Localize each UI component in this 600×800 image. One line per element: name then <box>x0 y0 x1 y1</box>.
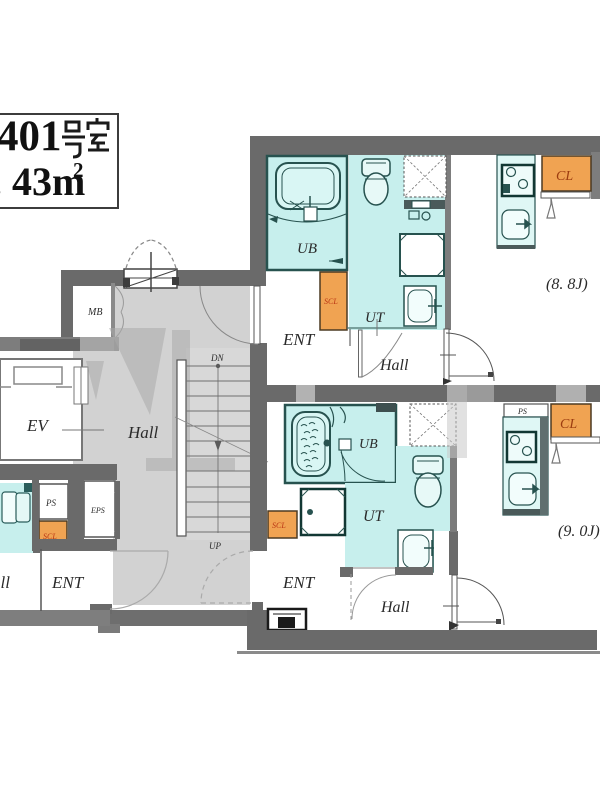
svg-text:UT: UT <box>365 310 386 326</box>
svg-text:Hall: Hall <box>379 357 409 374</box>
svg-text:Hall: Hall <box>380 599 410 616</box>
svg-text:PS: PS <box>517 407 527 416</box>
svg-text:(9. 0J): (9. 0J) <box>558 523 600 540</box>
svg-text:ENT: ENT <box>282 330 316 349</box>
svg-text:DN: DN <box>210 353 224 363</box>
svg-text:EV: EV <box>26 416 50 435</box>
svg-text:CL: CL <box>556 169 573 184</box>
svg-text:(8. 8J): (8. 8J) <box>546 276 588 293</box>
svg-text:all: all <box>0 573 10 592</box>
svg-text:EPS: EPS <box>90 506 105 515</box>
svg-text:UT: UT <box>363 508 385 525</box>
svg-text:MB: MB <box>87 307 102 318</box>
svg-text:2: 2 <box>73 158 84 182</box>
svg-text:CL: CL <box>560 417 577 432</box>
svg-text:401: 401 <box>0 113 62 160</box>
svg-text:PS: PS <box>45 498 56 508</box>
svg-text:UB: UB <box>359 437 378 452</box>
svg-text:Hall: Hall <box>127 423 159 442</box>
svg-text:UP: UP <box>209 541 221 551</box>
svg-text:ENT: ENT <box>51 573 85 592</box>
svg-text:ENT: ENT <box>282 573 316 592</box>
svg-text:SCL: SCL <box>324 297 338 306</box>
svg-text:SCL: SCL <box>272 521 286 530</box>
svg-text:UB: UB <box>297 241 317 257</box>
